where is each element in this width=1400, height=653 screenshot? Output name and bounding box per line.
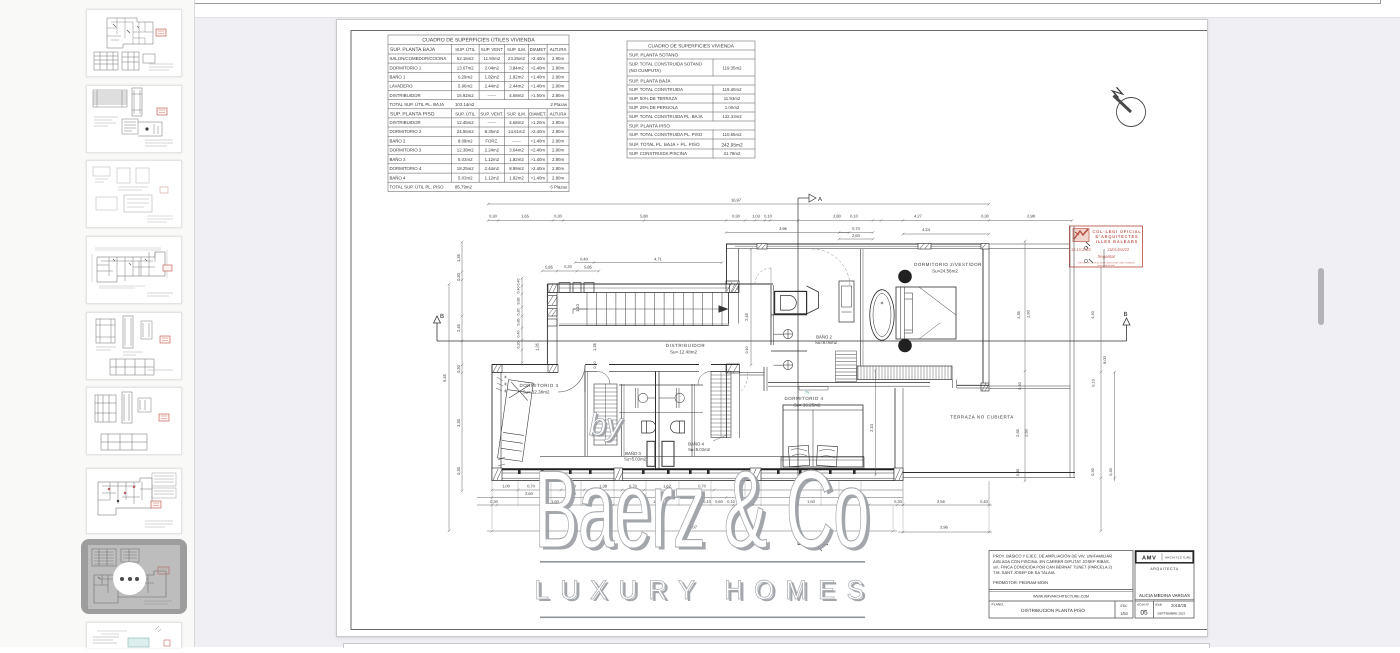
svg-text:>2.40m: >2.40m <box>530 65 545 70</box>
svg-text:SUP. TOTAL CONSTRUIDA SOTANO: SUP. TOTAL CONSTRUIDA SOTANO <box>629 62 703 67</box>
svg-text:SUP. PLANTA BAJA: SUP. PLANTA BAJA <box>629 79 671 84</box>
svg-text:119.35m2: 119.35m2 <box>723 66 743 71</box>
svg-text:ARQUITECTA: ARQUITECTA <box>1150 567 1178 571</box>
svg-text:5,85: 5,85 <box>517 298 521 305</box>
svg-text:2.80m: 2.80m <box>552 93 564 98</box>
svg-text:3,30: 3,30 <box>456 418 461 427</box>
svg-text:3.64m2: 3.64m2 <box>509 148 524 153</box>
svg-text:24.56m2: 24.56m2 <box>457 129 474 134</box>
svg-text:0,40: 0,40 <box>517 287 521 294</box>
svg-text:SUP. TOTAL PL. BAJA + PL. PISO: SUP. TOTAL PL. BAJA + PL. PISO <box>629 142 700 147</box>
svg-text:T.M. SANT JOSEP DE SA TALAIA: T.M. SANT JOSEP DE SA TALAIA <box>993 570 1055 575</box>
svg-text:DISTRIBUIDOR: DISTRIBUIDOR <box>390 93 421 98</box>
svg-text:ALTURA: ALTURA <box>550 47 567 52</box>
svg-text:BAÑO 4: BAÑO 4 <box>390 175 407 180</box>
svg-text:SALON/COMEDOR/COCINA: SALON/COMEDOR/COCINA <box>390 56 447 61</box>
svg-text:SUP. VENT.: SUP. VENT. <box>480 111 503 116</box>
svg-text:DIAMET: DIAMET <box>530 47 547 52</box>
svg-text:SUP. 50% DE TERRAZA: SUP. 50% DE TERRAZA <box>629 96 677 101</box>
svg-text:3,96: 3,96 <box>779 226 788 231</box>
svg-text:>2.40m: >2.40m <box>530 56 545 61</box>
svg-text:SUP. ÚTIL: SUP. ÚTIL <box>455 111 476 116</box>
svg-text:0,30: 0,30 <box>456 364 461 373</box>
svg-text:2,60: 2,60 <box>1027 310 1031 317</box>
svg-text:SUP. TOTAL CONSTRUIDA: SUP. TOTAL CONSTRUIDA <box>629 87 683 92</box>
svg-text:2.44m2: 2.44m2 <box>485 84 500 89</box>
svg-text:2.80m: 2.80m <box>552 166 564 171</box>
svg-text:3.84m2: 3.84m2 <box>509 65 524 70</box>
svg-text:15.92m2: 15.92m2 <box>457 93 474 98</box>
svg-text:SUP. PLANTA PISO: SUP. PLANTA PISO <box>390 112 435 118</box>
svg-text:SUP. PLANTA BAJA: SUP. PLANTA BAJA <box>390 47 436 53</box>
svg-text:1/50: 1/50 <box>1120 611 1129 616</box>
svg-text:BAÑO 3: BAÑO 3 <box>390 157 407 162</box>
svg-text:2.80m: 2.80m <box>552 84 564 89</box>
svg-text:132.33m2: 132.33m2 <box>722 114 742 119</box>
svg-text:5,85: 5,85 <box>545 265 554 270</box>
svg-text:1.82m2: 1.82m2 <box>509 157 524 162</box>
svg-text:>1.20m: >1.20m <box>530 120 545 125</box>
svg-text:4,71: 4,71 <box>654 256 663 261</box>
svg-text:1.82m2: 1.82m2 <box>509 75 524 80</box>
svg-text:Segarital: Segarital <box>1097 254 1115 259</box>
svg-text:6 Plazas: 6 Plazas <box>550 185 567 190</box>
svg-text:2,56: 2,56 <box>937 499 946 504</box>
svg-text:------: ------ <box>488 120 497 125</box>
svg-text:2.80m: 2.80m <box>552 148 564 153</box>
svg-text:DORMITORIO 2: DORMITORIO 2 <box>390 129 422 134</box>
svg-text:by: by <box>589 407 624 442</box>
svg-text:0,40: 0,40 <box>1018 382 1022 389</box>
svg-text:1,35: 1,35 <box>456 253 461 262</box>
svg-text:05: 05 <box>1140 610 1148 617</box>
svg-text:CIRCUITS P-L: LES ILLES DE GES: CIRCUITS P-L: LES ILLES DE GESTIO DE VIS… <box>1078 262 1135 265</box>
svg-text:13.67m2: 13.67m2 <box>457 65 474 70</box>
svg-text:ALTURA: ALTURA <box>550 111 567 116</box>
svg-text:2.80m: 2.80m <box>552 129 564 134</box>
svg-text:0,30: 0,30 <box>554 213 563 218</box>
svg-text:0,10: 0,10 <box>745 347 749 354</box>
svg-text:242.95m2: 242.95m2 <box>721 142 743 148</box>
svg-text:0,30: 0,30 <box>489 213 498 218</box>
svg-text:2.80m: 2.80m <box>552 139 564 144</box>
svg-text:85.79m2: 85.79m2 <box>455 185 472 190</box>
svg-text:4,35: 4,35 <box>1017 311 1021 318</box>
svg-text:2,60: 2,60 <box>1025 429 1029 436</box>
svg-text:Su= 16.25m2: Su= 16.25m2 <box>794 403 821 408</box>
svg-text:SUP. 25% DE PERGOLA: SUP. 25% DE PERGOLA <box>629 105 678 110</box>
svg-text:>1.40m: >1.40m <box>530 75 545 80</box>
svg-text:BAÑO 4: BAÑO 4 <box>688 442 704 447</box>
svg-text:>1.50m: >1.50m <box>530 93 545 98</box>
svg-text:2.80m: 2.80m <box>552 65 564 70</box>
svg-text:www.coaib.es/visat: www.coaib.es/visat <box>1097 264 1115 267</box>
svg-text:ARCHITECTURE: ARCHITECTURE <box>1165 555 1192 559</box>
svg-text:DORMITORIO 1: DORMITORIO 1 <box>390 65 422 70</box>
svg-text:5.03m2: 5.03m2 <box>458 175 473 180</box>
svg-text:41.78m2: 41.78m2 <box>724 151 741 156</box>
svg-text:CUADRO DE SUPERFICIES ÚTILES V: CUADRO DE SUPERFICIES ÚTILES VIVIENDA <box>422 37 535 44</box>
svg-text:DORMITORIO 3: DORMITORIO 3 <box>520 383 559 388</box>
svg-text:0,10: 0,10 <box>850 213 859 218</box>
svg-text:SEPTIEMBRE 2022: SEPTIEMBRE 2022 <box>1158 612 1186 616</box>
svg-text:4.68m2: 4.68m2 <box>509 93 524 98</box>
svg-text:2.80m: 2.80m <box>552 75 564 80</box>
svg-text:2,65: 2,65 <box>1016 429 1020 436</box>
svg-text:0,40: 0,40 <box>517 331 521 338</box>
svg-text:1,35: 1,35 <box>592 342 597 351</box>
svg-text:8,00: 8,00 <box>1103 356 1107 363</box>
svg-text:s/n, FINCA CONOCIDA POR CAN BE: s/n, FINCA CONOCIDA POR CAN BERNAT TUNET… <box>993 565 1113 570</box>
svg-text:(NO CUMPUTA): (NO CUMPUTA) <box>629 68 661 73</box>
svg-text:DISTRIBUCION PLANTA PISO: DISTRIBUCION PLANTA PISO <box>1021 608 1085 613</box>
svg-text:>2.40m: >2.40m <box>530 166 545 171</box>
svg-text:2.04m2: 2.04m2 <box>485 65 500 70</box>
svg-text:2,60: 2,60 <box>852 233 861 238</box>
svg-text:5,80: 5,80 <box>640 213 649 218</box>
svg-text:2.80m: 2.80m <box>552 120 564 125</box>
svg-text:PLANO:: PLANO: <box>992 603 1004 607</box>
svg-text:2.90m: 2.90m <box>552 56 564 61</box>
svg-text:0,10: 0,10 <box>593 362 597 369</box>
svg-text:B: B <box>1124 311 1128 318</box>
svg-text:EXP.: EXP. <box>1156 603 1163 607</box>
svg-text:110.65m2: 110.65m2 <box>723 132 743 137</box>
svg-text:Su= 12.48m2: Su= 12.48m2 <box>670 350 697 355</box>
svg-text:>1.40m: >1.40m <box>530 175 545 180</box>
svg-text:4,27: 4,27 <box>914 213 923 218</box>
svg-text:0,30: 0,30 <box>490 499 499 504</box>
svg-text:2,10: 2,10 <box>869 423 874 432</box>
svg-text:SUP. ILM.: SUP. ILM. <box>507 111 526 116</box>
svg-text:18.25m2: 18.25m2 <box>457 166 474 171</box>
svg-text:PROMOTOR: PEDRAM MOIN: PROMOTOR: PEDRAM MOIN <box>993 580 1048 585</box>
svg-text:8.08m2: 8.08m2 <box>458 139 473 144</box>
svg-text:103.14m2: 103.14m2 <box>455 102 475 107</box>
svg-text:23.26m2: 23.26m2 <box>508 56 525 61</box>
svg-text:6.29m2: 6.29m2 <box>458 75 473 80</box>
svg-text:TERRAZA NO CUBIERTA: TERRAZA NO CUBIERTA <box>950 415 1014 420</box>
svg-text:2,80: 2,80 <box>833 213 842 218</box>
svg-text:1,10: 1,10 <box>575 303 580 312</box>
svg-text:12.38m2: 12.38m2 <box>457 148 474 153</box>
svg-text:0,10: 0,10 <box>1092 379 1096 386</box>
svg-text:13/01455/22: 13/01455/22 <box>1107 247 1130 252</box>
svg-text:A: A <box>818 196 822 203</box>
svg-text:HOJA Nº: HOJA Nº <box>1137 603 1150 607</box>
svg-text:0,20: 0,20 <box>517 309 521 316</box>
svg-text:DORMITORIO 4: DORMITORIO 4 <box>390 166 422 171</box>
svg-text:ILLES BALEARS: ILLES BALEARS <box>1096 239 1138 244</box>
svg-text:>1.40m: >1.40m <box>530 84 545 89</box>
svg-text:1.12m2: 1.12m2 <box>485 157 500 162</box>
svg-text:0,40: 0,40 <box>580 256 589 261</box>
svg-text:12.45m2: 12.45m2 <box>457 120 474 125</box>
svg-text:5.96m2: 5.96m2 <box>458 84 473 89</box>
svg-text:2,45: 2,45 <box>456 323 461 332</box>
svg-text:------: ------ <box>512 139 521 144</box>
svg-text:ALICIA MEDINA VARGAS: ALICIA MEDINA VARGAS <box>1139 593 1190 598</box>
svg-text:SUP. VENT: SUP. VENT <box>481 47 504 52</box>
svg-text:DIAMET.: DIAMET. <box>529 111 546 116</box>
svg-text:0,40: 0,40 <box>517 279 521 286</box>
svg-text:DORMITORIO 3: DORMITORIO 3 <box>390 148 422 153</box>
svg-text:0,30: 0,30 <box>1091 468 1095 475</box>
svg-text:2,45: 2,45 <box>744 312 749 321</box>
svg-text:1,65: 1,65 <box>521 213 530 218</box>
svg-text:BAÑO 2: BAÑO 2 <box>816 335 832 340</box>
svg-text:------: ------ <box>488 93 497 98</box>
svg-text:AMV: AMV <box>1142 556 1157 562</box>
svg-text:SUP. PLANTA PISO: SUP. PLANTA PISO <box>629 124 670 129</box>
svg-text:BAÑO 1: BAÑO 1 <box>390 75 407 80</box>
svg-text:WWW.AMVARCHITECTURE.COM: WWW.AMVARCHITECTURE.COM <box>1033 595 1089 599</box>
svg-text:Su= 12.38m2: Su= 12.38m2 <box>523 390 550 395</box>
svg-text:DORMITORIO 2/VESTIDOR: DORMITORIO 2/VESTIDOR <box>914 262 982 267</box>
svg-text:2,98: 2,98 <box>1027 213 1036 218</box>
svg-text:119.40m2: 119.40m2 <box>723 87 743 92</box>
svg-text:2.44m2: 2.44m2 <box>509 84 524 89</box>
svg-text:1.12m2: 1.12m2 <box>485 175 500 180</box>
svg-text:0,30: 0,30 <box>894 499 903 504</box>
svg-text:SUP. ÚTIL: SUP. ÚTIL <box>455 47 476 52</box>
svg-text:4,24: 4,24 <box>922 227 931 232</box>
svg-text:2,60: 2,60 <box>525 491 534 496</box>
svg-text:14.61m2: 14.61m2 <box>508 129 525 134</box>
svg-text:0,30: 0,30 <box>1109 468 1113 475</box>
svg-text:1.00m2: 1.00m2 <box>725 105 740 110</box>
svg-text:0,10: 0,10 <box>764 213 773 218</box>
svg-text:0,30: 0,30 <box>1016 469 1020 476</box>
svg-text:SUP. PLANTA SOTANO: SUP. PLANTA SOTANO <box>629 53 678 58</box>
svg-text:DISTRIBUIDOR: DISTRIBUIDOR <box>390 120 421 125</box>
svg-text:0,30: 0,30 <box>981 213 990 218</box>
svg-text:ESC: ESC <box>1121 604 1129 608</box>
svg-text:1,03: 1,03 <box>752 213 761 218</box>
svg-text:DISTRIBUIDOR: DISTRIBUIDOR <box>666 343 706 348</box>
svg-text:LUXURY HOMES: LUXURY HOMES <box>535 575 875 605</box>
svg-text:16,97: 16,97 <box>731 198 742 203</box>
svg-text:0,30: 0,30 <box>456 466 461 475</box>
svg-text:0,20: 0,20 <box>517 342 521 349</box>
svg-text:4,40: 4,40 <box>1091 311 1095 318</box>
svg-text:0,30: 0,30 <box>732 213 741 218</box>
svg-text:5.03m2: 5.03m2 <box>458 157 473 162</box>
svg-text:>1.40m: >1.40m <box>530 157 545 162</box>
svg-text:SUP. TOTAL CONSTRUIDA PL. BAJA: SUP. TOTAL CONSTRUIDA PL. BAJA <box>629 114 703 119</box>
svg-text:2.24m2: 2.24m2 <box>485 148 500 153</box>
svg-text:Baerz & Co: Baerz & Co <box>534 448 869 571</box>
svg-text:B: B <box>440 313 444 320</box>
svg-text:SUP. TOTAL CONSTRUIDA PL. PISO: SUP. TOTAL CONSTRUIDA PL. PISO <box>629 132 703 137</box>
svg-text:1.82m2: 1.82m2 <box>509 175 524 180</box>
svg-text:DORMITORIO 4: DORMITORIO 4 <box>785 396 824 401</box>
svg-text:BAÑO 2: BAÑO 2 <box>390 139 407 144</box>
svg-text:62.15m2: 62.15m2 <box>457 56 474 61</box>
svg-text:>2.40m: >2.40m <box>530 129 545 134</box>
svg-text:AISLADA CON PISCINA, EN CARRE: AISLADA CON PISCINA, EN CARRER DIPUTAT J… <box>993 559 1110 564</box>
svg-text:2.80m: 2.80m <box>552 175 564 180</box>
svg-text:11.93m2: 11.93m2 <box>484 56 501 61</box>
svg-text:CUADRO DE SUPERFICIES VIVIENDA: CUADRO DE SUPERFICIES VIVIENDA <box>648 44 735 50</box>
svg-text:8.89m2: 8.89m2 <box>509 166 524 171</box>
svg-text:0,20: 0,20 <box>564 264 573 269</box>
svg-text:SUP. ILM.: SUP. ILM. <box>507 47 526 52</box>
svg-text:2018/28: 2018/28 <box>1171 603 1187 608</box>
svg-text:0,70: 0,70 <box>852 226 861 231</box>
svg-text:1.82m2: 1.82m2 <box>485 75 500 80</box>
svg-text:2.44m2: 2.44m2 <box>485 166 500 171</box>
svg-text:5,85: 5,85 <box>584 265 593 270</box>
svg-text:TOTAL SUP. ÚTIL PL. PISO: TOTAL SUP. ÚTIL PL. PISO <box>390 185 445 190</box>
svg-text:6,45: 6,45 <box>442 373 447 382</box>
svg-text:8.35m2: 8.35m2 <box>485 129 500 134</box>
svg-text:5,85: 5,85 <box>517 319 521 326</box>
svg-text:FORZ.: FORZ. <box>485 139 498 144</box>
svg-text:2.80m: 2.80m <box>552 157 564 162</box>
svg-text:4.68m2: 4.68m2 <box>509 120 524 125</box>
svg-text:TV: TV <box>805 391 810 395</box>
svg-text:PROY. BÁSICO Y EJEC. DE AMPLIA: PROY. BÁSICO Y EJEC. DE AMPLIACIÓN DE VI… <box>993 554 1112 559</box>
svg-text:0,40: 0,40 <box>980 499 989 504</box>
svg-text:2,96: 2,96 <box>940 525 949 530</box>
svg-text:0,30: 0,30 <box>456 272 461 281</box>
svg-text:TOTAL SUP. ÚTIL PL. BAJA: TOTAL SUP. ÚTIL PL. BAJA <box>390 102 445 107</box>
svg-text:2 Plazas: 2 Plazas <box>550 102 567 107</box>
svg-text:1,35: 1,35 <box>535 342 540 351</box>
svg-text:Su=24.56m2: Su=24.56m2 <box>932 269 958 274</box>
svg-text:LAVADERO: LAVADERO <box>390 84 414 89</box>
svg-text:Su=8.06m2: Su=8.06m2 <box>815 340 838 345</box>
svg-text:11.93m2: 11.93m2 <box>724 96 741 101</box>
svg-text:SUP. CONSTRUIDA PISCINA: SUP. CONSTRUIDA PISCINA <box>629 151 687 156</box>
svg-text:>1.40m: >1.40m <box>530 139 545 144</box>
svg-text:1,00: 1,00 <box>502 483 511 488</box>
svg-text:>2.40m: >2.40m <box>530 148 545 153</box>
